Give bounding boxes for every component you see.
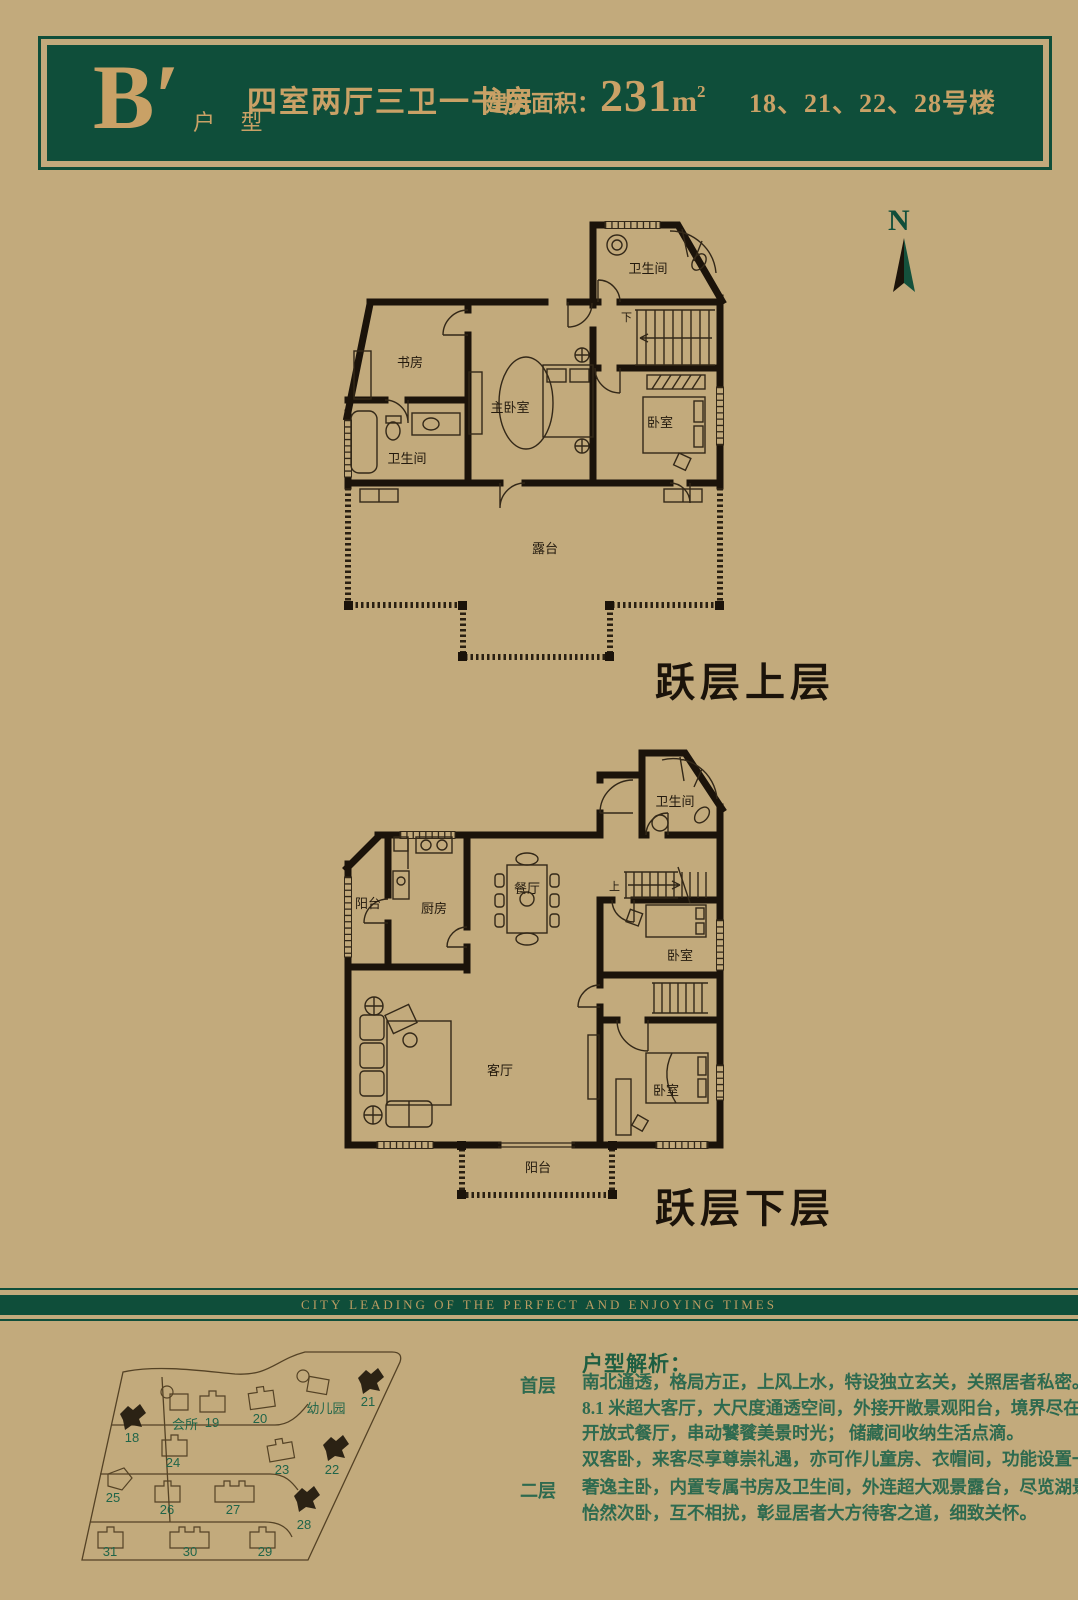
room-label-study: 书房: [397, 355, 423, 370]
sink: [423, 418, 439, 430]
analysis-line: 南北通透，格局方正，上风上水，特设独立玄关，关照居者私密。: [582, 1370, 1078, 1396]
building-21-highlighted: [358, 1368, 384, 1394]
area-unit-exponent: 2: [697, 82, 706, 102]
analysis-line: 怡然次卧，互不相扰，彰显居者大方待客之道，细致关怀。: [582, 1501, 1078, 1527]
plant: [385, 1004, 417, 1033]
analysis-line: 双客卧，来客尽享尊崇礼遇，亦可作儿童房、衣帽间，功能设置一切随心。: [582, 1447, 1078, 1473]
room-label-bath: 卫生间: [655, 794, 694, 809]
stair-direction-down: 下: [621, 312, 632, 324]
room-label-balcony-side: 阳台: [355, 896, 381, 911]
area-label: 建筑面积：: [485, 84, 600, 118]
room-label-kitchen: 厨房: [421, 901, 447, 916]
room-label-bedroom-mid: 卧室: [667, 948, 693, 963]
room-label-master: 主卧室: [490, 400, 529, 415]
lower-plan-title: 跃层下层: [655, 1176, 835, 1234]
site-buildings: [98, 1370, 329, 1548]
room-label-bath-lower: 卫生间: [387, 451, 426, 466]
dining-table: [507, 865, 547, 933]
upper-windows: [345, 222, 724, 478]
map-num-28: 28: [297, 1517, 311, 1532]
site-boundary: [82, 1352, 401, 1560]
map-num-18: 18: [125, 1430, 139, 1445]
highlighted-buildings: [120, 1368, 384, 1512]
map-num-29: 29: [258, 1544, 272, 1559]
north-label: N: [888, 204, 910, 238]
map-num-31: 31: [103, 1544, 117, 1559]
site-map: 18 19 20 21 22 23 24 25 26 27 28 29 30 3…: [70, 1332, 410, 1577]
unit-type-letter: B′: [93, 51, 180, 143]
closet-hatch: [652, 983, 708, 1013]
bathtub: [351, 411, 377, 473]
mid-bedroom-bed: [646, 905, 706, 937]
site-roads: [90, 1377, 308, 1537]
balcony-sliding-door: [498, 1143, 575, 1147]
map-num-21: 21: [361, 1394, 375, 1409]
map-num-23: 23: [275, 1462, 289, 1477]
lower-doors: [364, 780, 668, 1051]
upper-plan-title: 跃层上层: [655, 650, 835, 708]
map-clubhouse-label: 会所: [172, 1417, 198, 1432]
map-num-24: 24: [166, 1455, 180, 1470]
lower-floor-plan: 卫生间 阳台 厨房 餐厅 上 卧室 客厅 卧室 阳台: [330, 735, 770, 1235]
toilet: [386, 422, 400, 440]
room-label-bedroom-lower: 卧室: [653, 1083, 679, 1098]
terrace-railings: [348, 488, 720, 657]
upper-doors: [385, 280, 690, 508]
analysis-section2-label: 二层: [520, 1477, 556, 1503]
upper-floor-plan: 卫生间 书房 主卧室 卧室 卫生间 露台 下: [330, 205, 760, 670]
master-bed: [543, 365, 593, 437]
analysis-section1-label: 首层: [520, 1372, 556, 1398]
area-unit: m: [672, 85, 697, 119]
area-value: 231: [600, 69, 672, 122]
built-area: 建筑面积： 231 m 2: [485, 69, 706, 122]
room-label-terrace: 露台: [532, 541, 558, 556]
living-rug: [387, 1021, 451, 1105]
room-label-bath-top: 卫生间: [628, 261, 667, 276]
upper-stairs: [635, 310, 715, 365]
north-arrow-icon: [885, 236, 925, 298]
banner-bottom-rule: [0, 1319, 1078, 1321]
map-num-27: 27: [226, 1502, 240, 1517]
map-num-19: 19: [205, 1415, 219, 1430]
room-label-balcony-bottom: 阳台: [525, 1160, 551, 1175]
map-num-25: 25: [106, 1490, 120, 1505]
flyer-page: B′ 户 型 四室两厅三卫一书房 建筑面积： 231 m 2 18、21、22、…: [0, 0, 1078, 1600]
lower-wardrobe: [616, 1079, 631, 1135]
building-22-highlighted: [323, 1435, 349, 1461]
room-label-living: 客厅: [487, 1063, 513, 1078]
analysis-line: 8.1 米超大客厅，大尺度通透空间，外接开敞景观阳台，境界尽在视野间。: [582, 1396, 1078, 1422]
map-kindergarten-label: 幼儿园: [306, 1401, 345, 1416]
room-label-bedroom: 卧室: [647, 415, 673, 430]
header-panel: B′ 户 型 四室两厅三卫一书房 建筑面积： 231 m 2 18、21、22、…: [38, 36, 1052, 170]
banner-text: CITY LEADING OF THE PERFECT AND ENJOYING…: [0, 1295, 1078, 1315]
map-num-26: 26: [160, 1502, 174, 1517]
header-inner: B′ 户 型 四室两厅三卫一书房 建筑面积： 231 m 2 18、21、22、…: [47, 45, 1043, 161]
stair-direction-up: 上: [609, 880, 620, 893]
building-numbers: 18、21、22、28号楼: [749, 83, 996, 120]
analysis-line: 开放式餐厅，串动饕餮美景时光； 储藏间收纳生活点滴。: [582, 1421, 1078, 1447]
analysis-section1-lines: 南北通透，格局方正，上风上水，特设独立玄关，关照居者私密。 8.1 米超大客厅，…: [582, 1370, 1078, 1473]
building-18-highlighted: [120, 1404, 146, 1430]
analysis-line: 奢逸主卧，内置专属书房及卫生间，外连超大观景露台，尽览湖景，尊贵感浸润其中: [582, 1475, 1078, 1501]
analysis-section2-lines: 奢逸主卧，内置专属书房及卫生间，外连超大观景露台，尽览湖景，尊贵感浸润其中 怡然…: [582, 1475, 1078, 1526]
map-num-20: 20: [253, 1411, 267, 1426]
map-num-30: 30: [183, 1544, 197, 1559]
banner-top-rule: [0, 1288, 1078, 1290]
room-label-dining: 餐厅: [514, 881, 540, 896]
map-num-22: 22: [325, 1462, 339, 1477]
